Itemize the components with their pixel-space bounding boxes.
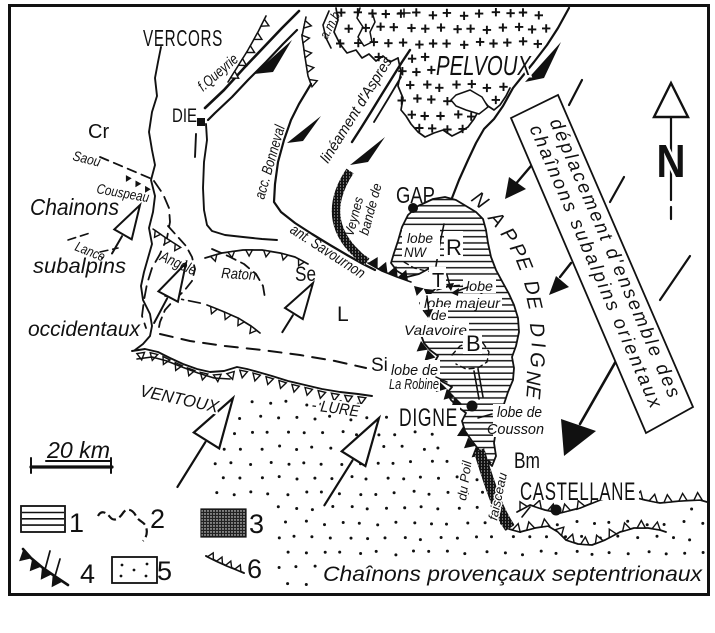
svg-text:Raton: Raton bbox=[221, 265, 257, 284]
svg-text:DIGNE: DIGNE bbox=[399, 404, 458, 432]
svg-text:B: B bbox=[466, 331, 481, 356]
svg-text:5: 5 bbox=[157, 556, 172, 586]
svg-text:de: de bbox=[431, 307, 447, 323]
svg-text:6: 6 bbox=[247, 554, 262, 584]
svg-text:occidentaux: occidentaux bbox=[28, 318, 141, 341]
svg-text:T: T bbox=[432, 270, 444, 292]
svg-text:GAP: GAP bbox=[396, 182, 435, 208]
svg-text:Si: Si bbox=[371, 355, 388, 376]
svg-text:CASTELLANE: CASTELLANE bbox=[520, 478, 636, 506]
svg-text:D: D bbox=[525, 321, 549, 338]
svg-text:Chainons: Chainons bbox=[30, 194, 119, 220]
svg-text:3: 3 bbox=[249, 509, 264, 539]
svg-text:Cr: Cr bbox=[88, 121, 109, 143]
svg-text:N: N bbox=[657, 135, 686, 187]
svg-text:L: L bbox=[337, 303, 349, 326]
svg-text:NW: NW bbox=[404, 244, 428, 260]
svg-text:E: E bbox=[521, 384, 544, 400]
svg-text:La Robine: La Robine bbox=[389, 376, 439, 393]
svg-text:Cousson: Cousson bbox=[487, 421, 544, 438]
svg-text:lobe de: lobe de bbox=[497, 404, 542, 421]
svg-text:4: 4 bbox=[80, 559, 95, 589]
svg-text:Se: Se bbox=[295, 263, 316, 286]
svg-text:PELVOUX: PELVOUX bbox=[436, 50, 532, 81]
svg-text:1: 1 bbox=[69, 508, 84, 538]
svg-text:Valavoire: Valavoire bbox=[404, 322, 467, 338]
svg-text:Chaînons provençaux septentr: Chaînons provençaux septentrionaux bbox=[323, 563, 704, 586]
svg-text:R: R bbox=[446, 235, 462, 260]
svg-text:lobe: lobe bbox=[466, 278, 493, 294]
svg-text:subalpins: subalpins bbox=[33, 255, 127, 278]
svg-text:Bm: Bm bbox=[514, 448, 540, 473]
svg-text:VERCORS: VERCORS bbox=[143, 25, 223, 51]
svg-text:DIE: DIE bbox=[172, 106, 197, 127]
svg-text:20 km: 20 km bbox=[46, 437, 110, 463]
svg-text:2: 2 bbox=[150, 504, 165, 534]
svg-text:G: G bbox=[525, 352, 548, 368]
